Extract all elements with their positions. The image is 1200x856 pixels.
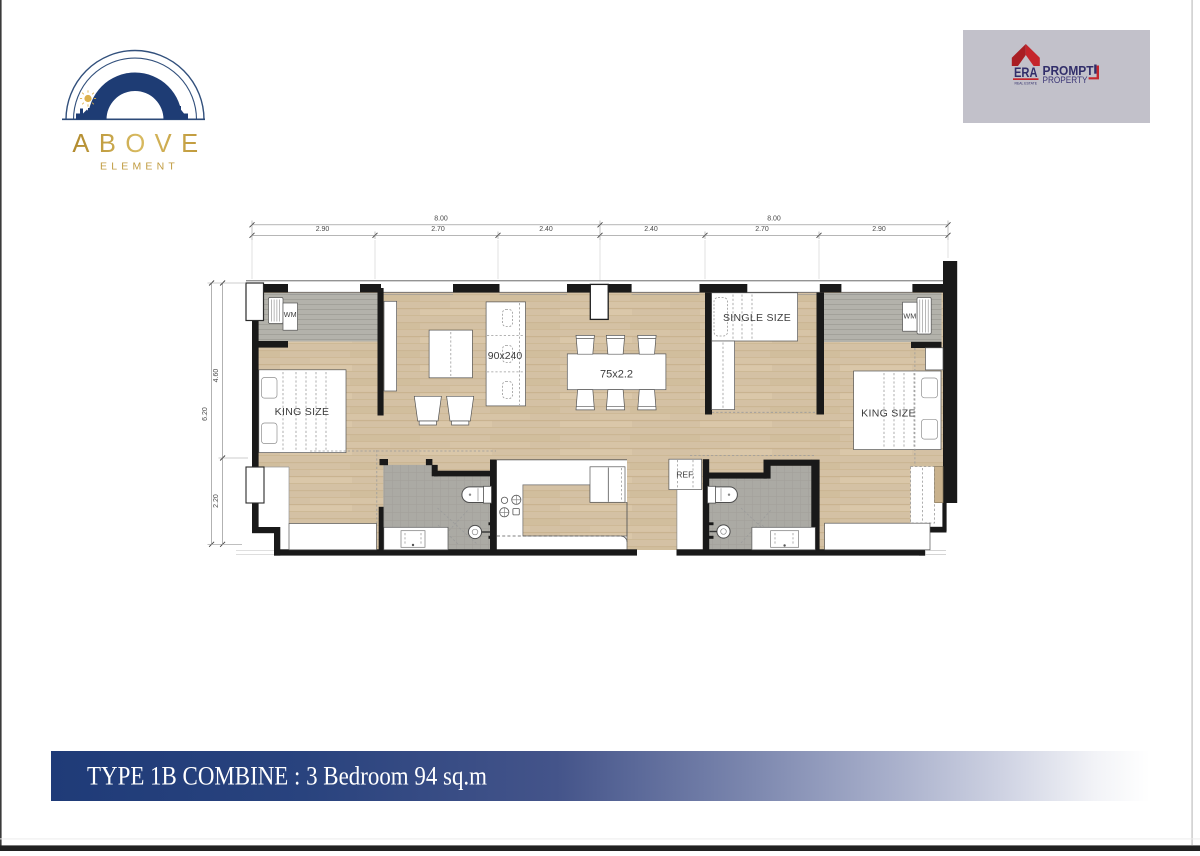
- svg-text:2.90: 2.90: [872, 226, 886, 233]
- svg-text:REF.: REF.: [676, 470, 694, 480]
- svg-text:2.70: 2.70: [431, 226, 445, 233]
- svg-text:PROPERTY: PROPERTY: [1043, 74, 1089, 85]
- svg-text:REAL ESTATE: REAL ESTATE: [1015, 82, 1038, 86]
- svg-text:8.00: 8.00: [434, 215, 448, 222]
- svg-text:WM: WM: [903, 312, 916, 321]
- svg-text:KING SIZE: KING SIZE: [861, 408, 916, 420]
- svg-text:TYPE 1B COMBINE : 3 Bedroom 94: TYPE 1B COMBINE : 3 Bedroom 94 sq.m: [87, 762, 487, 791]
- svg-text:2.90: 2.90: [316, 226, 330, 233]
- svg-text:2.40: 2.40: [539, 226, 553, 233]
- svg-text:KING SIZE: KING SIZE: [275, 406, 330, 418]
- svg-text:6.20: 6.20: [202, 407, 209, 421]
- svg-text:90x240: 90x240: [488, 350, 523, 362]
- svg-text:2.70: 2.70: [755, 226, 769, 233]
- svg-text:8.00: 8.00: [767, 215, 781, 222]
- svg-text:ABOVE: ABOVE: [72, 130, 207, 158]
- svg-text:75x2.2: 75x2.2: [600, 369, 633, 381]
- svg-text:4.60: 4.60: [213, 369, 220, 383]
- svg-text:2.40: 2.40: [644, 226, 658, 233]
- svg-text:ERA: ERA: [1014, 65, 1038, 80]
- svg-text:2.20: 2.20: [213, 494, 220, 508]
- svg-text:WM: WM: [284, 310, 297, 319]
- svg-text:SINGLE SIZE: SINGLE SIZE: [723, 312, 791, 324]
- svg-text:ELEMENT: ELEMENT: [100, 161, 179, 173]
